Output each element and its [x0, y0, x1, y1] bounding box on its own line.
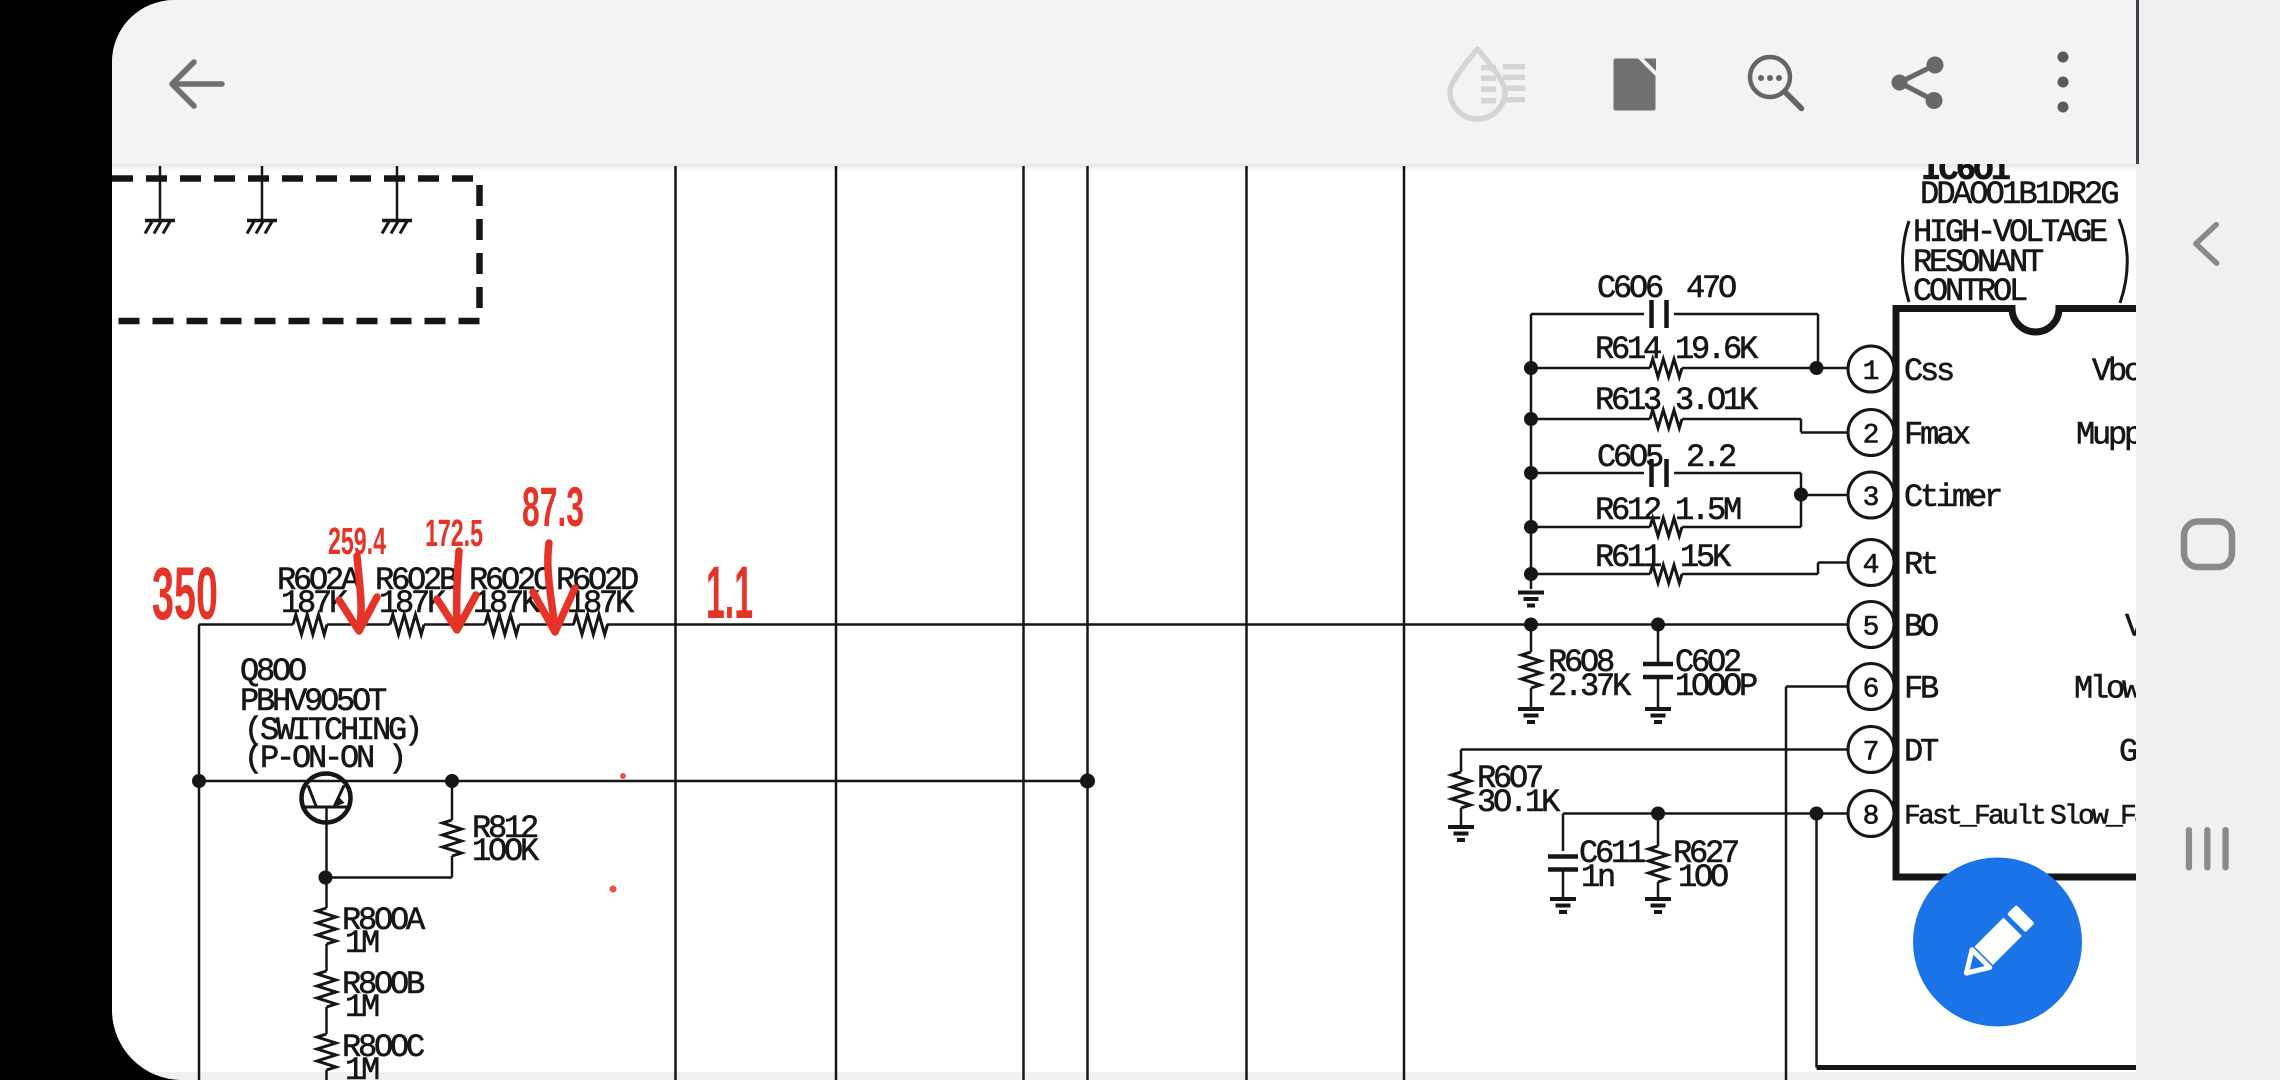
svg-text:CONTROL: CONTROL	[1913, 273, 2027, 310]
svg-text:3O.1K: 3O.1K	[1477, 784, 1561, 821]
svg-text:47O: 47O	[1686, 270, 1736, 307]
svg-text:350: 350	[152, 552, 218, 635]
svg-text:Fmax: Fmax	[1904, 417, 1970, 454]
svg-text:87.3: 87.3	[522, 475, 584, 538]
svg-text:DT: DT	[1904, 734, 1938, 771]
svg-text:1M: 1M	[345, 925, 379, 962]
svg-text:1M: 1M	[345, 989, 379, 1026]
svg-text:Vbo: Vbo	[2092, 353, 2136, 390]
svg-text:C6O6: C6O6	[1597, 270, 1663, 307]
svg-text:R612: R612	[1595, 492, 1660, 529]
svg-text:1.5M: 1.5M	[1675, 492, 1741, 529]
svg-text:2.2: 2.2	[1686, 439, 1735, 476]
svg-text:DDAOO1B1DR2G: DDAOO1B1DR2G	[1920, 176, 2118, 213]
svg-text:Fast_Fault: Fast_Fault	[1904, 802, 2044, 833]
svg-text:FB: FB	[1904, 671, 1938, 708]
svg-text:1M: 1M	[345, 1052, 379, 1080]
svg-text:G: G	[2119, 734, 2136, 771]
svg-text:2.37K: 2.37K	[1548, 668, 1632, 705]
svg-text:(P-ON-ON ): (P-ON-ON )	[244, 740, 404, 777]
svg-text:172.5: 172.5	[425, 513, 483, 555]
svg-text:Slow_Fault: Slow_Fault	[2050, 802, 2136, 833]
svg-text:15K: 15K	[1680, 539, 1732, 576]
svg-text:Mlow: Mlow	[2074, 671, 2136, 708]
svg-text:1: 1	[1863, 357, 1880, 388]
svg-text:3.O1K: 3.O1K	[1675, 382, 1759, 419]
svg-text:4: 4	[1863, 551, 1880, 582]
svg-text:C6O5: C6O5	[1597, 439, 1663, 476]
svg-text:R611: R611	[1595, 539, 1661, 576]
svg-text:Css: Css	[1904, 353, 1953, 390]
svg-text:19.6K: 19.6K	[1675, 331, 1759, 368]
svg-text:1n: 1n	[1581, 859, 1614, 896]
svg-text:1.1: 1.1	[706, 551, 753, 634]
svg-text:2: 2	[1863, 421, 1880, 452]
svg-text:Mupp: Mupp	[2076, 417, 2136, 454]
svg-text:8: 8	[1863, 802, 1880, 833]
svg-text:Rt: Rt	[1904, 547, 1936, 584]
svg-text:7: 7	[1863, 738, 1880, 769]
svg-text:BO: BO	[1904, 609, 1938, 646]
svg-text:R614: R614	[1595, 331, 1661, 368]
svg-text:1OOK: 1OOK	[472, 833, 540, 870]
svg-text:Ctimer: Ctimer	[1904, 479, 2001, 516]
svg-text:6: 6	[1863, 675, 1880, 706]
svg-text:5: 5	[1863, 613, 1880, 644]
svg-text:1OO: 1OO	[1678, 859, 1728, 896]
svg-text:V: V	[2125, 609, 2136, 646]
svg-text:R613: R613	[1595, 382, 1661, 419]
svg-text:3: 3	[1863, 483, 1880, 514]
svg-text:1OOOP: 1OOOP	[1675, 668, 1757, 705]
